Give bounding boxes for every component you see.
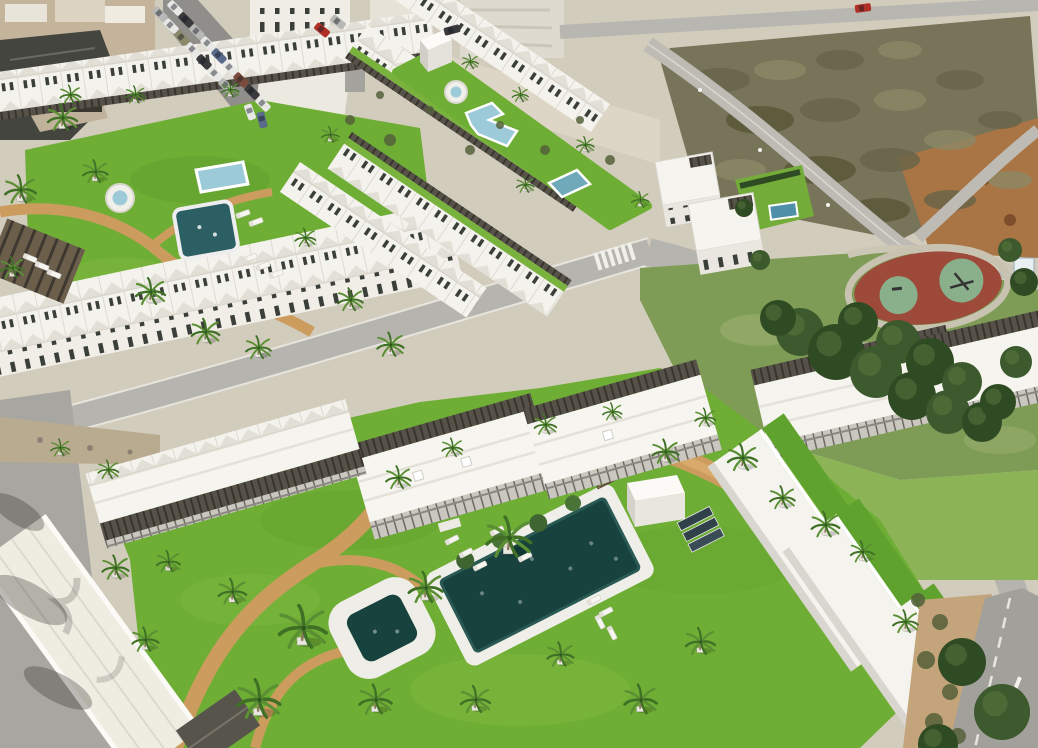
- shrub: [942, 684, 958, 700]
- scene-shape: [698, 88, 702, 92]
- park-tree-highlight: [738, 201, 746, 209]
- park-tree-highlight: [816, 331, 841, 356]
- park-tree-highlight: [1005, 350, 1019, 364]
- scene-shape: [1004, 214, 1016, 226]
- scene-shape: [55, 0, 105, 22]
- aerial-render-image: [0, 0, 1038, 748]
- scrub-patch: [754, 60, 806, 80]
- scene-shape: [105, 6, 145, 23]
- scrub-patch: [860, 148, 920, 172]
- shrub: [465, 145, 475, 155]
- scrub-patch: [878, 41, 922, 59]
- shrub: [540, 145, 550, 155]
- park-tree-highlight: [985, 389, 1001, 405]
- car-windshield: [859, 5, 865, 12]
- park-tree-highlight: [913, 344, 935, 366]
- shrub: [384, 134, 396, 146]
- park-tree-highlight: [753, 253, 762, 262]
- park-tree-highlight: [945, 644, 967, 666]
- scene-svg: [0, 0, 1038, 748]
- scene-shape: [602, 429, 613, 440]
- park-tree-highlight: [895, 378, 917, 400]
- park-tree-highlight: [883, 326, 903, 346]
- shrub: [426, 106, 434, 114]
- shrub: [345, 115, 355, 125]
- scene-shape: [461, 456, 472, 467]
- shrub: [932, 614, 948, 630]
- scene-shape: [758, 148, 762, 152]
- shrub: [917, 651, 935, 669]
- park-tree-highlight: [982, 691, 1007, 716]
- park-tree-highlight: [948, 367, 966, 385]
- shrub: [576, 116, 584, 124]
- villa-pool: [769, 202, 798, 220]
- kids-pool-phase1: [173, 200, 239, 259]
- scrub-patch: [978, 111, 1022, 129]
- park-tree-highlight: [1002, 241, 1013, 252]
- park-tree-highlight: [765, 305, 781, 321]
- scene-shape: [87, 445, 93, 451]
- scene-shape: [37, 437, 43, 443]
- scene-shape: [5, 4, 47, 22]
- scene-shape: [826, 203, 830, 207]
- shrub: [605, 155, 615, 165]
- changing-room-cube: [627, 475, 685, 527]
- park-tree-highlight: [933, 396, 953, 416]
- park-tree-highlight: [924, 729, 942, 747]
- scrub-patch: [816, 50, 864, 70]
- scene-shape: [413, 470, 424, 481]
- park-tree-highlight: [1014, 272, 1027, 285]
- park-tree-highlight: [844, 307, 862, 325]
- scrub-patch: [936, 70, 984, 90]
- scrub-patch: [800, 98, 860, 122]
- scene-shape: [113, 191, 128, 206]
- scene-shape: [451, 87, 462, 98]
- shrub: [376, 91, 384, 99]
- shrub: [911, 593, 925, 607]
- park-tree-highlight: [858, 353, 881, 376]
- shrub: [496, 121, 504, 129]
- scrub-patch: [924, 130, 976, 150]
- scrub-patch: [874, 89, 926, 111]
- scene-shape: [410, 654, 630, 726]
- scene-shape: [173, 200, 239, 259]
- scene-shape: [128, 450, 133, 455]
